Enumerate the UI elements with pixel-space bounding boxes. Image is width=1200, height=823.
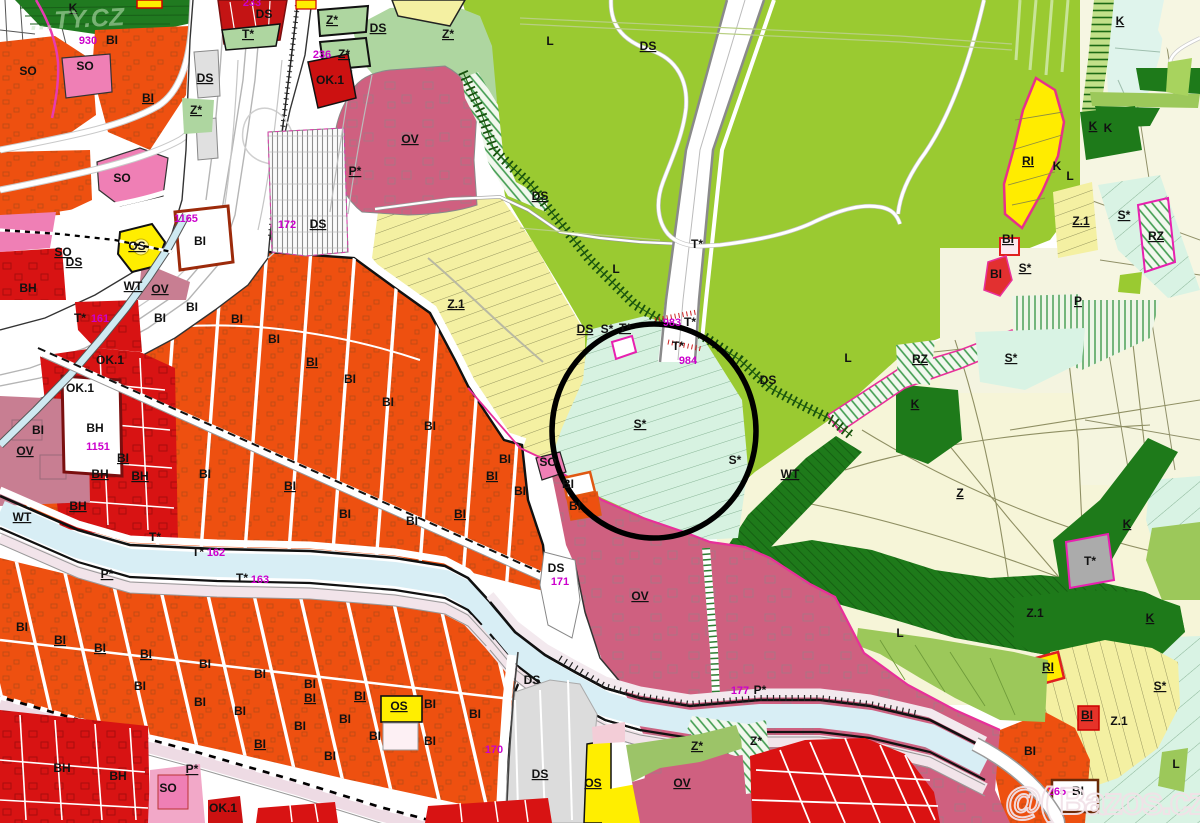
svg-text:BI: BI xyxy=(194,234,206,248)
svg-text:DS: DS xyxy=(197,71,214,85)
svg-text:K: K xyxy=(1104,121,1113,135)
svg-text:P: P xyxy=(1074,294,1082,308)
svg-text:@( Bazos.cz: @( Bazos.cz xyxy=(1005,781,1200,823)
svg-text:S*: S* xyxy=(729,453,742,467)
svg-text:S*: S* xyxy=(634,417,647,431)
svg-text:DS: DS xyxy=(532,767,549,781)
svg-text:BI: BI xyxy=(1081,708,1093,722)
svg-text:DS: DS xyxy=(370,21,387,35)
svg-text:162: 162 xyxy=(207,547,225,559)
svg-text:Z.1: Z.1 xyxy=(1026,606,1044,620)
svg-text:BI: BI xyxy=(344,372,356,386)
svg-text:BI: BI xyxy=(194,695,206,709)
svg-text:BI: BI xyxy=(32,423,44,437)
svg-text:K: K xyxy=(1089,119,1098,133)
svg-text:930: 930 xyxy=(79,35,97,47)
svg-text:BI: BI xyxy=(199,467,211,481)
svg-text:177: 177 xyxy=(731,685,749,697)
svg-text:S*: S* xyxy=(1118,208,1131,222)
svg-text:1165: 1165 xyxy=(174,213,198,225)
svg-text:T*: T* xyxy=(1084,554,1096,568)
svg-text:S*: S* xyxy=(1005,351,1018,365)
svg-text:BI: BI xyxy=(424,734,436,748)
svg-text:BH: BH xyxy=(91,467,108,481)
svg-text:WT: WT xyxy=(13,510,32,524)
svg-text:BI: BI xyxy=(106,33,118,47)
svg-text:BI: BI xyxy=(231,312,243,326)
svg-text:172: 172 xyxy=(278,219,296,231)
svg-text:K: K xyxy=(1123,517,1132,531)
svg-text:BI: BI xyxy=(354,689,366,703)
svg-text:OV: OV xyxy=(673,776,690,790)
svg-text:P*: P* xyxy=(349,164,362,178)
svg-text:BI: BI xyxy=(454,507,466,521)
svg-text:RZ: RZ xyxy=(912,352,928,366)
svg-text:P*: P* xyxy=(754,683,767,697)
svg-text:OK.1: OK.1 xyxy=(316,73,344,87)
svg-text:BI: BI xyxy=(284,479,296,493)
svg-text:171: 171 xyxy=(551,576,569,588)
svg-text:BI: BI xyxy=(486,469,498,483)
svg-text:OK.1: OK.1 xyxy=(209,801,237,815)
svg-text:WT: WT xyxy=(781,467,800,481)
svg-text:T*: T* xyxy=(236,571,248,585)
svg-text:BI: BI xyxy=(134,679,146,693)
svg-text:BI: BI xyxy=(268,332,280,346)
svg-text:BI: BI xyxy=(382,395,394,409)
svg-text:K: K xyxy=(1053,159,1062,173)
svg-text:DS: DS xyxy=(256,7,273,21)
svg-text:Z*: Z* xyxy=(691,739,703,753)
svg-text:DS: DS xyxy=(577,322,594,336)
svg-text:OV: OV xyxy=(151,282,168,296)
svg-text:BI: BI xyxy=(469,707,481,721)
svg-text:T*: T* xyxy=(691,237,703,251)
svg-text:DS: DS xyxy=(640,39,657,53)
svg-text:BI: BI xyxy=(514,484,526,498)
svg-text:L: L xyxy=(546,34,553,48)
svg-text:Z*: Z* xyxy=(442,27,454,41)
svg-text:K: K xyxy=(911,397,920,411)
svg-text:BI: BI xyxy=(16,620,28,634)
svg-text:OK.1: OK.1 xyxy=(96,353,124,367)
svg-text:BI: BI xyxy=(306,355,318,369)
svg-text:BI: BI xyxy=(94,641,106,655)
svg-text:OV: OV xyxy=(401,132,418,146)
svg-text:WT: WT xyxy=(124,279,143,293)
svg-text:T*: T* xyxy=(619,321,631,335)
svg-text:BI: BI xyxy=(990,267,1002,281)
svg-text:DS: DS xyxy=(524,673,541,687)
svg-text:…TY.CZ: …TY.CZ xyxy=(29,3,127,36)
svg-text:L: L xyxy=(1066,169,1073,183)
svg-text:S*: S* xyxy=(1154,679,1167,693)
svg-text:BI: BI xyxy=(140,647,152,661)
svg-text:170: 170 xyxy=(485,744,503,756)
svg-text:Z*: Z* xyxy=(190,103,202,117)
svg-text:BI: BI xyxy=(117,451,129,465)
svg-text:Z.1: Z.1 xyxy=(1072,214,1090,228)
svg-text:DS: DS xyxy=(310,217,327,231)
svg-text:BI: BI xyxy=(569,499,581,513)
svg-text:Z.1: Z.1 xyxy=(447,297,465,311)
svg-text:OS: OS xyxy=(390,699,407,713)
svg-text:163: 163 xyxy=(251,574,269,586)
svg-text:OK.1: OK.1 xyxy=(66,381,94,395)
svg-text:BI: BI xyxy=(1002,232,1014,246)
svg-text:Z: Z xyxy=(956,486,963,500)
svg-text:161: 161 xyxy=(91,313,109,325)
svg-text:T*: T* xyxy=(672,339,684,353)
svg-text:K: K xyxy=(1146,611,1155,625)
svg-text:RI: RI xyxy=(1022,154,1034,168)
svg-text:SO: SO xyxy=(76,59,93,73)
svg-text:BH: BH xyxy=(131,469,148,483)
svg-text:T*: T* xyxy=(149,530,161,544)
svg-text:BI: BI xyxy=(234,704,246,718)
svg-text:BI: BI xyxy=(142,91,154,105)
svg-text:OS: OS xyxy=(584,776,601,790)
svg-text:BH: BH xyxy=(86,421,103,435)
svg-text:BI: BI xyxy=(154,311,166,325)
svg-text:L: L xyxy=(844,351,851,365)
svg-text:DS: DS xyxy=(66,255,83,269)
svg-text:BI: BI xyxy=(499,452,511,466)
svg-text:T*: T* xyxy=(684,315,696,329)
svg-text:BI: BI xyxy=(424,697,436,711)
svg-text:984: 984 xyxy=(679,355,698,367)
svg-text:SO: SO xyxy=(113,171,130,185)
svg-text:T*: T* xyxy=(242,27,254,41)
svg-text:P*: P* xyxy=(186,762,199,776)
svg-text:Z.1: Z.1 xyxy=(1110,714,1128,728)
svg-text:BI: BI xyxy=(424,419,436,433)
svg-text:OV: OV xyxy=(16,444,33,458)
svg-text:Z*: Z* xyxy=(338,47,350,61)
svg-text:BI: BI xyxy=(369,729,381,743)
svg-text:BH: BH xyxy=(69,499,86,513)
svg-text:BI: BI xyxy=(324,749,336,763)
svg-text:DS: DS xyxy=(532,189,549,203)
svg-text:S*: S* xyxy=(601,322,614,336)
svg-text:BI: BI xyxy=(1024,744,1036,758)
svg-text:L: L xyxy=(1172,757,1179,771)
svg-text:T*: T* xyxy=(192,545,204,559)
svg-text:BI: BI xyxy=(562,477,574,491)
svg-text:BI: BI xyxy=(54,633,66,647)
svg-text:OV: OV xyxy=(631,589,648,603)
svg-text:L: L xyxy=(896,626,903,640)
svg-text:BI: BI xyxy=(339,507,351,521)
svg-text:L: L xyxy=(612,262,619,276)
svg-text:BH: BH xyxy=(109,769,126,783)
svg-text:DS: DS xyxy=(548,561,565,575)
svg-text:BI: BI xyxy=(254,737,266,751)
svg-text:Z*: Z* xyxy=(326,13,338,27)
svg-text:BH: BH xyxy=(53,761,70,775)
svg-text:BI: BI xyxy=(304,677,316,691)
svg-text:S*: S* xyxy=(1019,261,1032,275)
svg-text:BI: BI xyxy=(406,514,418,528)
svg-text:DS: DS xyxy=(760,373,777,387)
svg-text:K: K xyxy=(1116,14,1125,28)
svg-text:BH: BH xyxy=(19,281,36,295)
svg-text:BI: BI xyxy=(304,691,316,705)
svg-text:BI: BI xyxy=(254,667,266,681)
svg-text:BI: BI xyxy=(199,657,211,671)
svg-text:236: 236 xyxy=(313,49,331,61)
svg-text:P*: P* xyxy=(101,567,114,581)
svg-text:BI: BI xyxy=(339,712,351,726)
svg-text:RZ: RZ xyxy=(1148,229,1164,243)
svg-text:BI: BI xyxy=(186,300,198,314)
svg-text:Z*: Z* xyxy=(750,734,762,748)
svg-text:BI: BI xyxy=(294,719,306,733)
svg-text:SO: SO xyxy=(159,781,176,795)
svg-text:SO: SO xyxy=(539,455,556,469)
svg-text:RI: RI xyxy=(1042,660,1054,674)
svg-text:1151: 1151 xyxy=(86,441,110,453)
svg-text:T*: T* xyxy=(74,311,86,325)
svg-text:SO: SO xyxy=(19,64,36,78)
svg-text:OS: OS xyxy=(128,239,145,253)
svg-text:983: 983 xyxy=(663,317,681,329)
